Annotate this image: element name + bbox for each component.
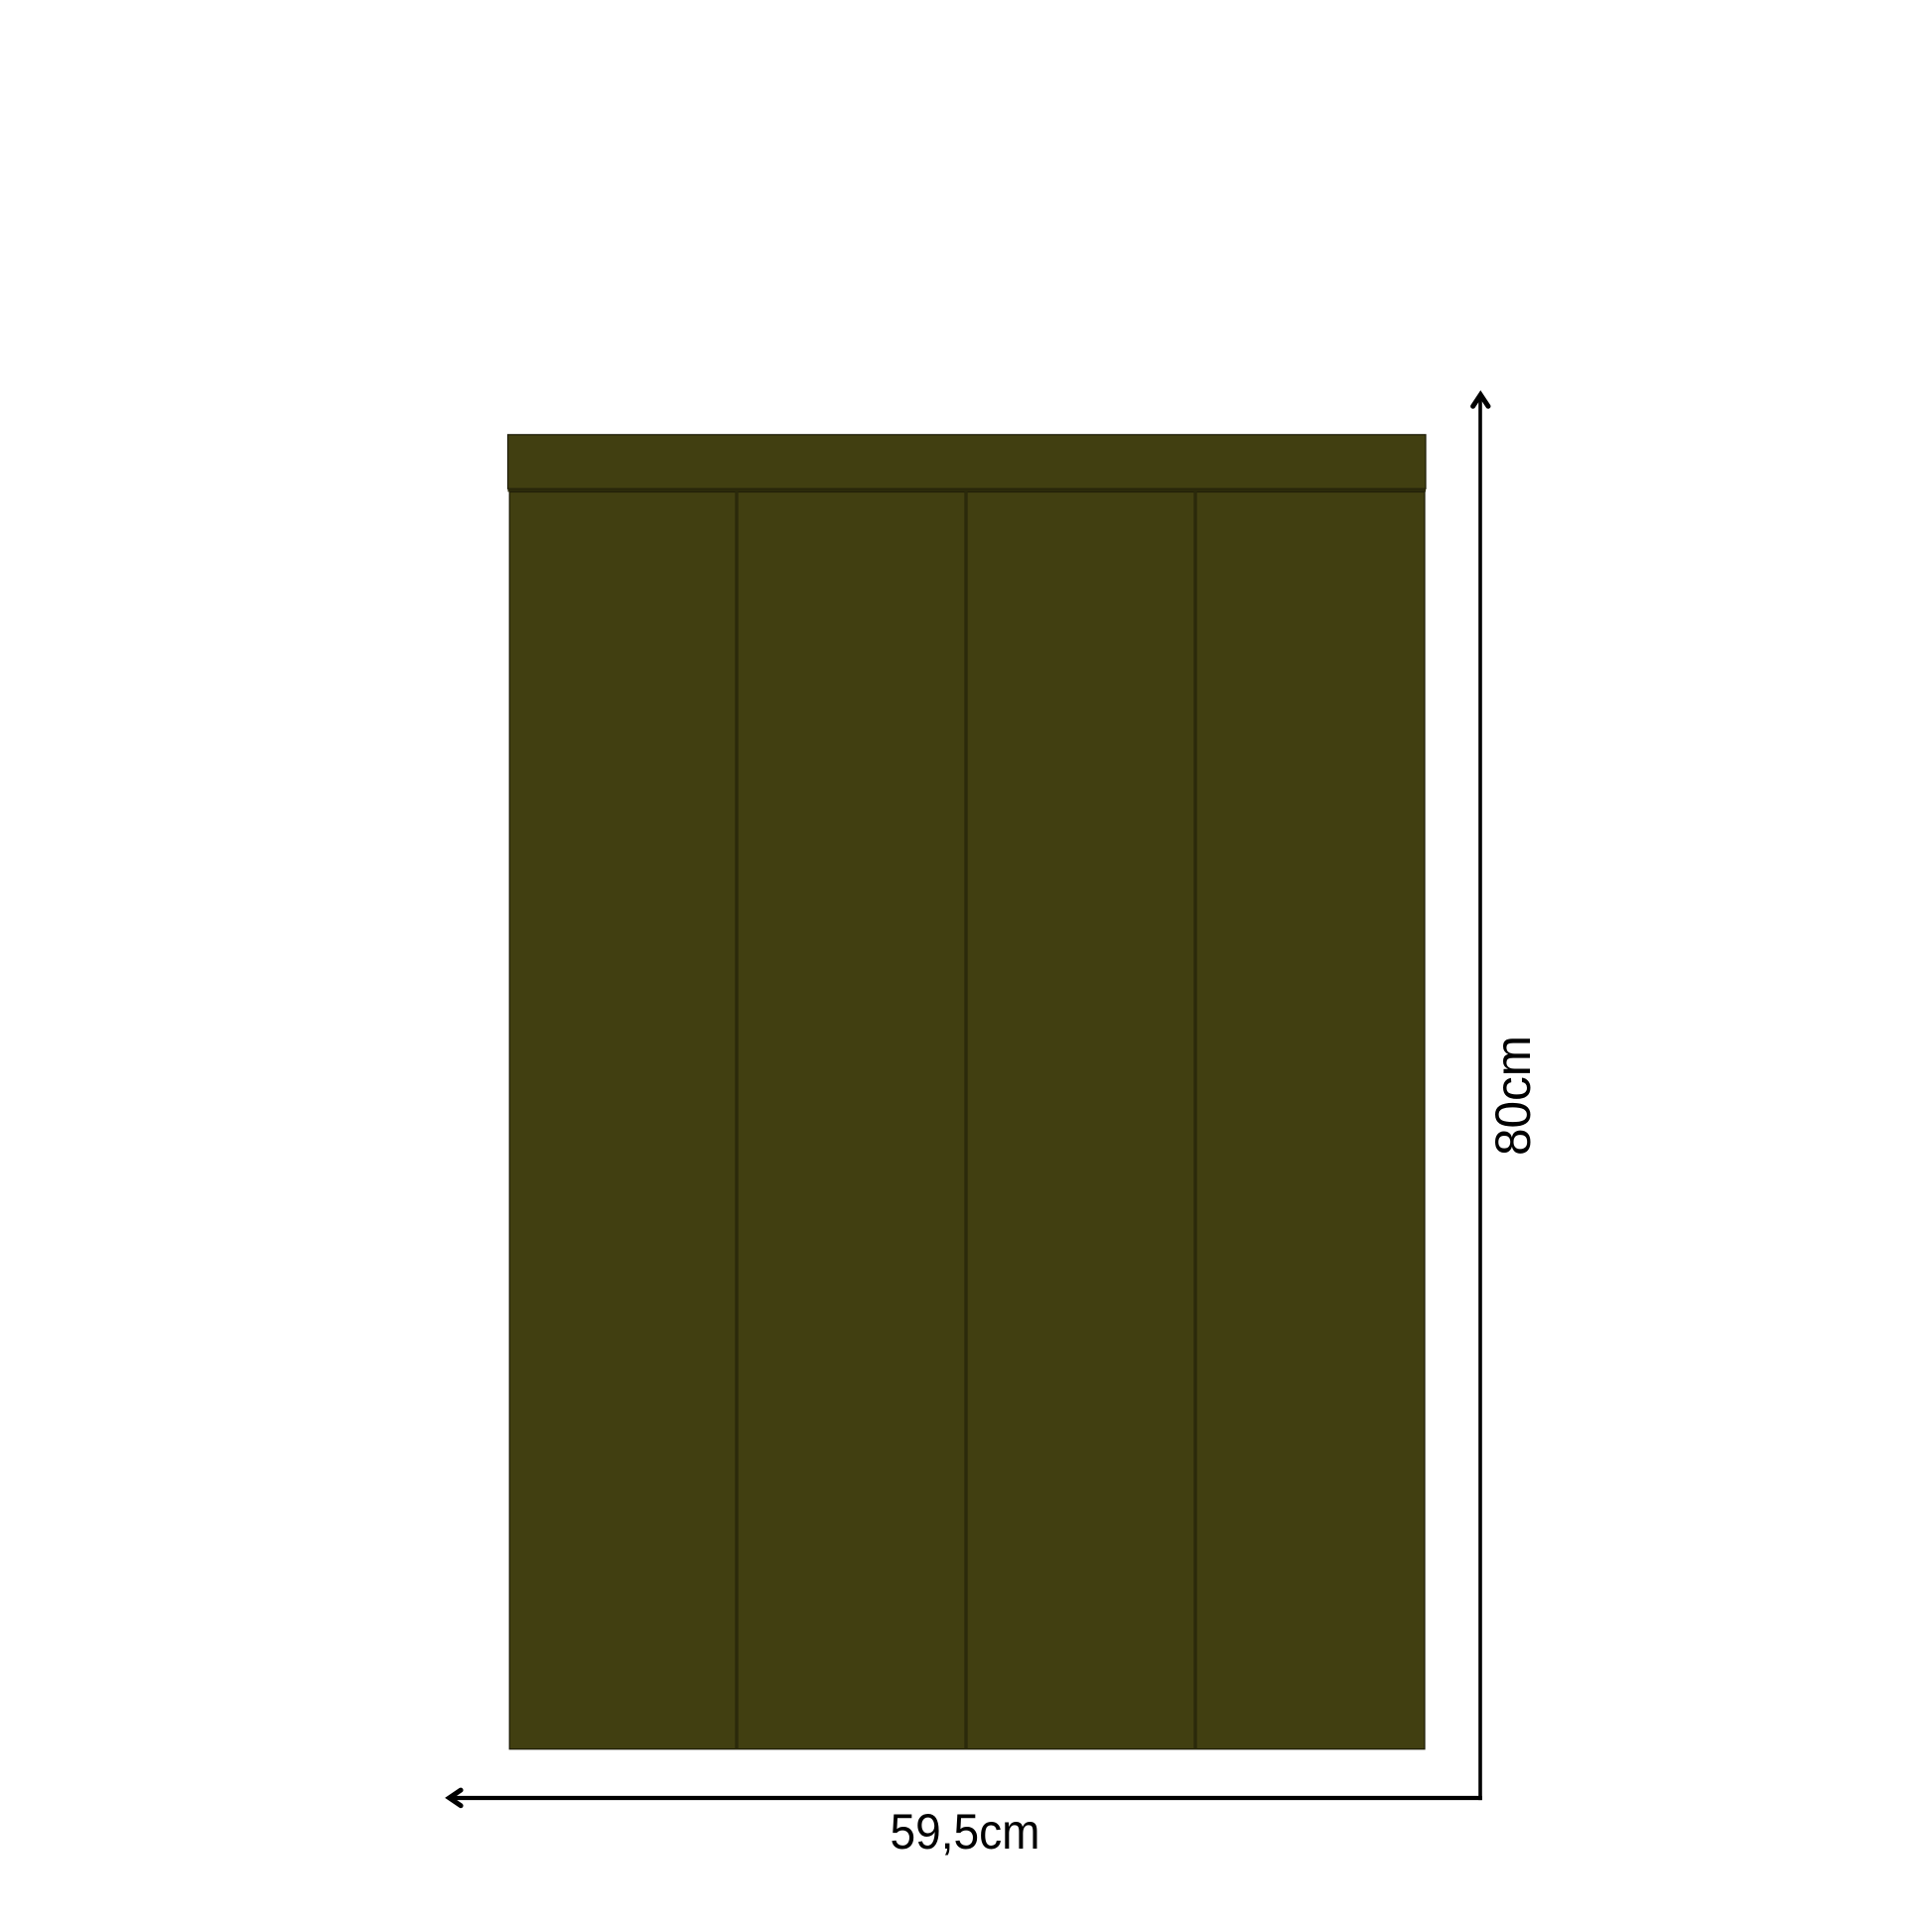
svg-text:80cm: 80cm (1485, 1035, 1541, 1156)
svg-text:59,5cm: 59,5cm (891, 1804, 1040, 1860)
